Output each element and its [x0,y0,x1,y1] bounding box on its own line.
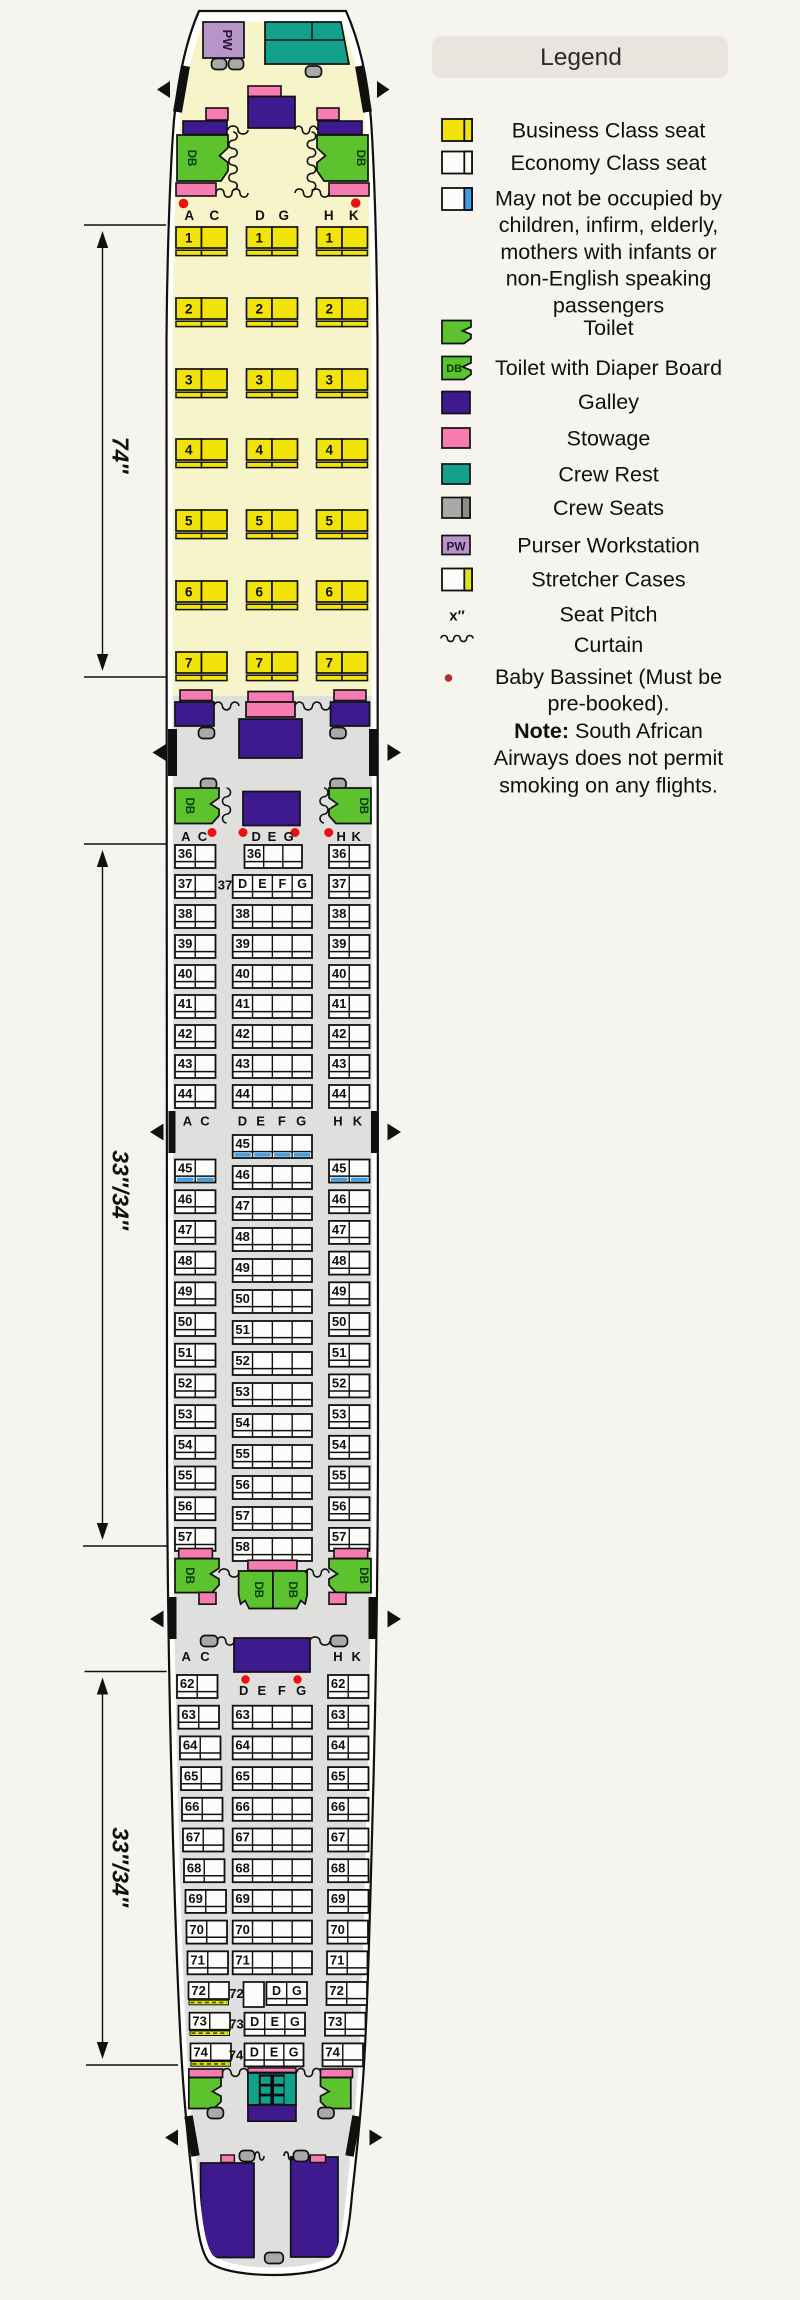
svg-text:72: 72 [329,1983,343,1998]
svg-text:43: 43 [235,1056,249,1071]
svg-text:A: A [184,208,194,223]
svg-text:K: K [353,1114,363,1129]
svg-text:47: 47 [178,1222,192,1237]
svg-text:73: 73 [328,2014,342,2029]
svg-text:55: 55 [235,1446,249,1461]
svg-text:40: 40 [235,966,249,981]
svg-text:H: H [333,1649,342,1664]
svg-text:6: 6 [185,585,193,600]
svg-text:4: 4 [255,443,263,458]
svg-text:64: 64 [331,1738,346,1753]
svg-text:41: 41 [332,996,346,1011]
svg-text:2: 2 [185,302,193,317]
svg-text:D: D [272,1984,281,1998]
svg-text:D: D [238,877,247,891]
svg-text:56: 56 [332,1498,346,1513]
svg-text:74: 74 [325,2045,340,2060]
svg-text:50: 50 [332,1314,346,1329]
svg-text:DB: DB [185,150,197,167]
svg-text:passengers: passengers [553,293,664,317]
svg-text:Note: South African: Note: South African [514,719,703,743]
svg-text:Toilet with Diaper Board: Toilet with Diaper Board [495,356,722,380]
svg-text:DB: DB [286,1581,298,1598]
svg-text:DB: DB [357,797,369,814]
svg-text:52: 52 [235,1353,249,1368]
svg-text:x″: x″ [449,608,465,625]
svg-text:63: 63 [235,1707,249,1722]
svg-text:E: E [270,2046,278,2060]
svg-text:Stowage: Stowage [567,427,651,451]
svg-text:G: G [296,1114,306,1129]
svg-text:Galley: Galley [578,390,639,414]
svg-text:K: K [349,208,359,223]
svg-text:C: C [209,208,219,223]
svg-text:51: 51 [178,1345,192,1360]
svg-text:5: 5 [255,514,263,529]
svg-text:40: 40 [178,966,192,981]
svg-text:D: D [238,1114,247,1129]
svg-text:67: 67 [186,1830,200,1845]
svg-text:72: 72 [191,1983,205,1998]
svg-text:43: 43 [332,1056,346,1071]
svg-text:33″/34″: 33″/34″ [108,1150,134,1231]
svg-text:63: 63 [331,1707,345,1722]
svg-text:42: 42 [332,1026,346,1041]
svg-text:D: D [239,1683,248,1698]
svg-text:A: A [182,1649,192,1664]
svg-text:37: 37 [178,876,192,891]
svg-text:45: 45 [235,1136,249,1151]
svg-text:37: 37 [332,876,346,891]
svg-text:G: G [278,208,289,223]
svg-text:54: 54 [178,1437,193,1452]
svg-text:7: 7 [185,656,193,671]
svg-text:55: 55 [178,1468,192,1483]
svg-text:36: 36 [332,846,346,861]
svg-text:68: 68 [187,1860,201,1875]
svg-text:G: G [297,877,307,891]
svg-text:7: 7 [255,656,263,671]
svg-text:4: 4 [185,443,193,458]
svg-text:44: 44 [332,1086,347,1101]
svg-text:67: 67 [235,1830,249,1845]
svg-text:39: 39 [178,936,192,951]
svg-text:74: 74 [193,2044,208,2059]
svg-text:54: 54 [332,1437,347,1452]
svg-text:66: 66 [185,1799,199,1814]
svg-text:DB: DB [446,363,462,375]
svg-text:F: F [278,1683,286,1698]
svg-text:E: E [256,1114,265,1129]
svg-text:Crew Rest: Crew Rest [558,463,658,487]
svg-text:pre-booked).: pre-booked). [548,691,670,715]
svg-text:4: 4 [325,443,333,458]
svg-text:Airways does not permit: Airways does not permit [494,746,723,770]
svg-text:47: 47 [332,1222,346,1237]
svg-text:6: 6 [255,585,263,600]
svg-text:H: H [333,1114,342,1129]
svg-text:Business Class seat: Business Class seat [512,119,706,143]
svg-text:52: 52 [332,1376,346,1391]
svg-text:DB: DB [183,797,195,814]
svg-text:47: 47 [235,1198,249,1213]
svg-text:E: E [258,877,266,891]
svg-text:D: D [250,2046,259,2060]
svg-text:G: G [290,2015,300,2029]
svg-text:Baby Bassinet (Must be: Baby Bassinet (Must be [495,665,722,689]
svg-text:39: 39 [235,936,249,951]
svg-text:69: 69 [188,1891,202,1906]
svg-text:Curtain: Curtain [574,633,643,657]
svg-text:48: 48 [178,1253,192,1268]
svg-text:62: 62 [180,1676,194,1691]
svg-text:5: 5 [185,514,193,529]
svg-text:G: G [292,1984,302,1998]
svg-text:72: 72 [229,1986,243,2001]
svg-text:56: 56 [178,1498,192,1513]
svg-text:46: 46 [332,1191,346,1206]
svg-text:54: 54 [235,1415,250,1430]
svg-text:44: 44 [235,1086,250,1101]
svg-text:65: 65 [235,1768,249,1783]
svg-text:62: 62 [331,1676,345,1691]
svg-text:PW: PW [220,30,235,52]
svg-text:39: 39 [332,936,346,951]
svg-text:38: 38 [332,906,346,921]
svg-text:36: 36 [178,846,192,861]
svg-text:37: 37 [218,878,232,893]
svg-text:DB: DB [252,1581,264,1598]
svg-text:44: 44 [178,1086,193,1101]
svg-text:38: 38 [235,906,249,921]
svg-text:E: E [271,2015,279,2029]
svg-text:Legend: Legend [540,44,622,71]
svg-text:Economy Class seat: Economy Class seat [511,151,707,175]
svg-text:57: 57 [332,1529,346,1544]
svg-text:3: 3 [185,373,193,388]
svg-text:69: 69 [235,1891,249,1906]
svg-text:73: 73 [229,2017,243,2032]
svg-text:53: 53 [178,1406,192,1421]
svg-text:Stretcher Cases: Stretcher Cases [531,567,685,591]
svg-text:Seat Pitch: Seat Pitch [560,602,658,626]
svg-text:DB: DB [357,1567,369,1584]
svg-text:70: 70 [189,1922,203,1937]
svg-text:E: E [257,1683,266,1698]
svg-text:49: 49 [332,1284,346,1299]
svg-text:C: C [200,1649,210,1664]
svg-text:Crew Seats: Crew Seats [553,496,664,520]
svg-text:42: 42 [178,1026,192,1041]
svg-text:66: 66 [331,1799,345,1814]
svg-text:49: 49 [235,1260,249,1275]
svg-text:70: 70 [330,1922,344,1937]
svg-text:71: 71 [190,1953,204,1968]
svg-text:G: G [296,1683,306,1698]
svg-text:50: 50 [235,1291,249,1306]
svg-text:2: 2 [325,302,333,317]
svg-text:43: 43 [178,1056,192,1071]
svg-text:3: 3 [325,373,333,388]
svg-text:46: 46 [235,1167,249,1182]
svg-text:64: 64 [183,1738,198,1753]
svg-text:48: 48 [235,1229,249,1244]
svg-text:66: 66 [235,1799,249,1814]
svg-text:46: 46 [178,1191,192,1206]
svg-text:68: 68 [235,1860,249,1875]
svg-text:A: A [183,1114,193,1129]
svg-text:Toilet: Toilet [583,316,633,340]
svg-text:65: 65 [184,1768,198,1783]
svg-text:A: A [181,829,191,844]
svg-text:F: F [278,1114,286,1129]
svg-text:42: 42 [235,1026,249,1041]
svg-text:55: 55 [332,1468,346,1483]
svg-text:73: 73 [192,2014,206,2029]
svg-text:71: 71 [235,1953,249,1968]
svg-text:50: 50 [178,1314,192,1329]
svg-text:D: D [255,208,265,223]
svg-text:DB: DB [354,150,366,167]
svg-text:6: 6 [325,585,333,600]
svg-text:DB: DB [183,1567,195,1584]
svg-text:36: 36 [247,846,261,861]
svg-text:45: 45 [178,1161,192,1176]
svg-text:74: 74 [229,2047,244,2062]
svg-text:53: 53 [332,1406,346,1421]
svg-text:51: 51 [235,1322,249,1337]
svg-text:H: H [337,829,346,844]
svg-text:57: 57 [178,1529,192,1544]
svg-text:49: 49 [178,1284,192,1299]
svg-text:3: 3 [255,373,263,388]
svg-text:D: D [250,2015,259,2029]
svg-text:69: 69 [331,1891,345,1906]
svg-text:E: E [268,829,277,844]
svg-text:53: 53 [235,1384,249,1399]
svg-text:K: K [352,829,362,844]
svg-text:56: 56 [235,1477,249,1492]
svg-text:1: 1 [185,231,193,246]
svg-text:C: C [200,1114,210,1129]
svg-text:64: 64 [235,1738,250,1753]
svg-text:40: 40 [332,966,346,981]
svg-text:65: 65 [331,1768,345,1783]
svg-text:Purser Workstation: Purser Workstation [517,534,699,558]
svg-text:63: 63 [181,1707,195,1722]
svg-text:C: C [198,829,208,844]
svg-text:F: F [278,877,286,891]
svg-text:7: 7 [325,656,333,671]
svg-text:5: 5 [325,514,333,529]
svg-text:68: 68 [331,1860,345,1875]
svg-text:41: 41 [235,996,249,1011]
svg-text:45: 45 [332,1161,346,1176]
svg-text:PW: PW [446,540,466,554]
svg-text:57: 57 [235,1508,249,1523]
svg-text:33″/34″: 33″/34″ [108,1827,134,1908]
svg-text:48: 48 [332,1253,346,1268]
svg-text:smoking on any flights.: smoking on any flights. [499,774,718,798]
svg-text:1: 1 [325,231,333,246]
svg-text:non-English speaking: non-English speaking [506,267,712,291]
svg-text:41: 41 [178,996,192,1011]
svg-text:52: 52 [178,1376,192,1391]
svg-text:G: G [289,2046,299,2060]
svg-text:May not be occupied by: May not be occupied by [495,187,722,211]
svg-text:58: 58 [235,1539,249,1554]
svg-text:70: 70 [235,1922,249,1937]
svg-text:children, infirm, elderly,: children, infirm, elderly, [499,213,718,237]
svg-text:mothers with infants or: mothers with infants or [500,240,716,264]
svg-text:2: 2 [255,302,263,317]
svg-text:H: H [324,208,334,223]
svg-text:71: 71 [330,1953,344,1968]
svg-text:51: 51 [332,1345,346,1360]
svg-text:38: 38 [178,906,192,921]
svg-text:74″: 74″ [108,437,134,475]
svg-text:67: 67 [331,1830,345,1845]
svg-text:1: 1 [255,231,263,246]
svg-text:K: K [352,1649,362,1664]
svg-text:G: G [284,829,294,844]
svg-text:D: D [252,829,261,844]
